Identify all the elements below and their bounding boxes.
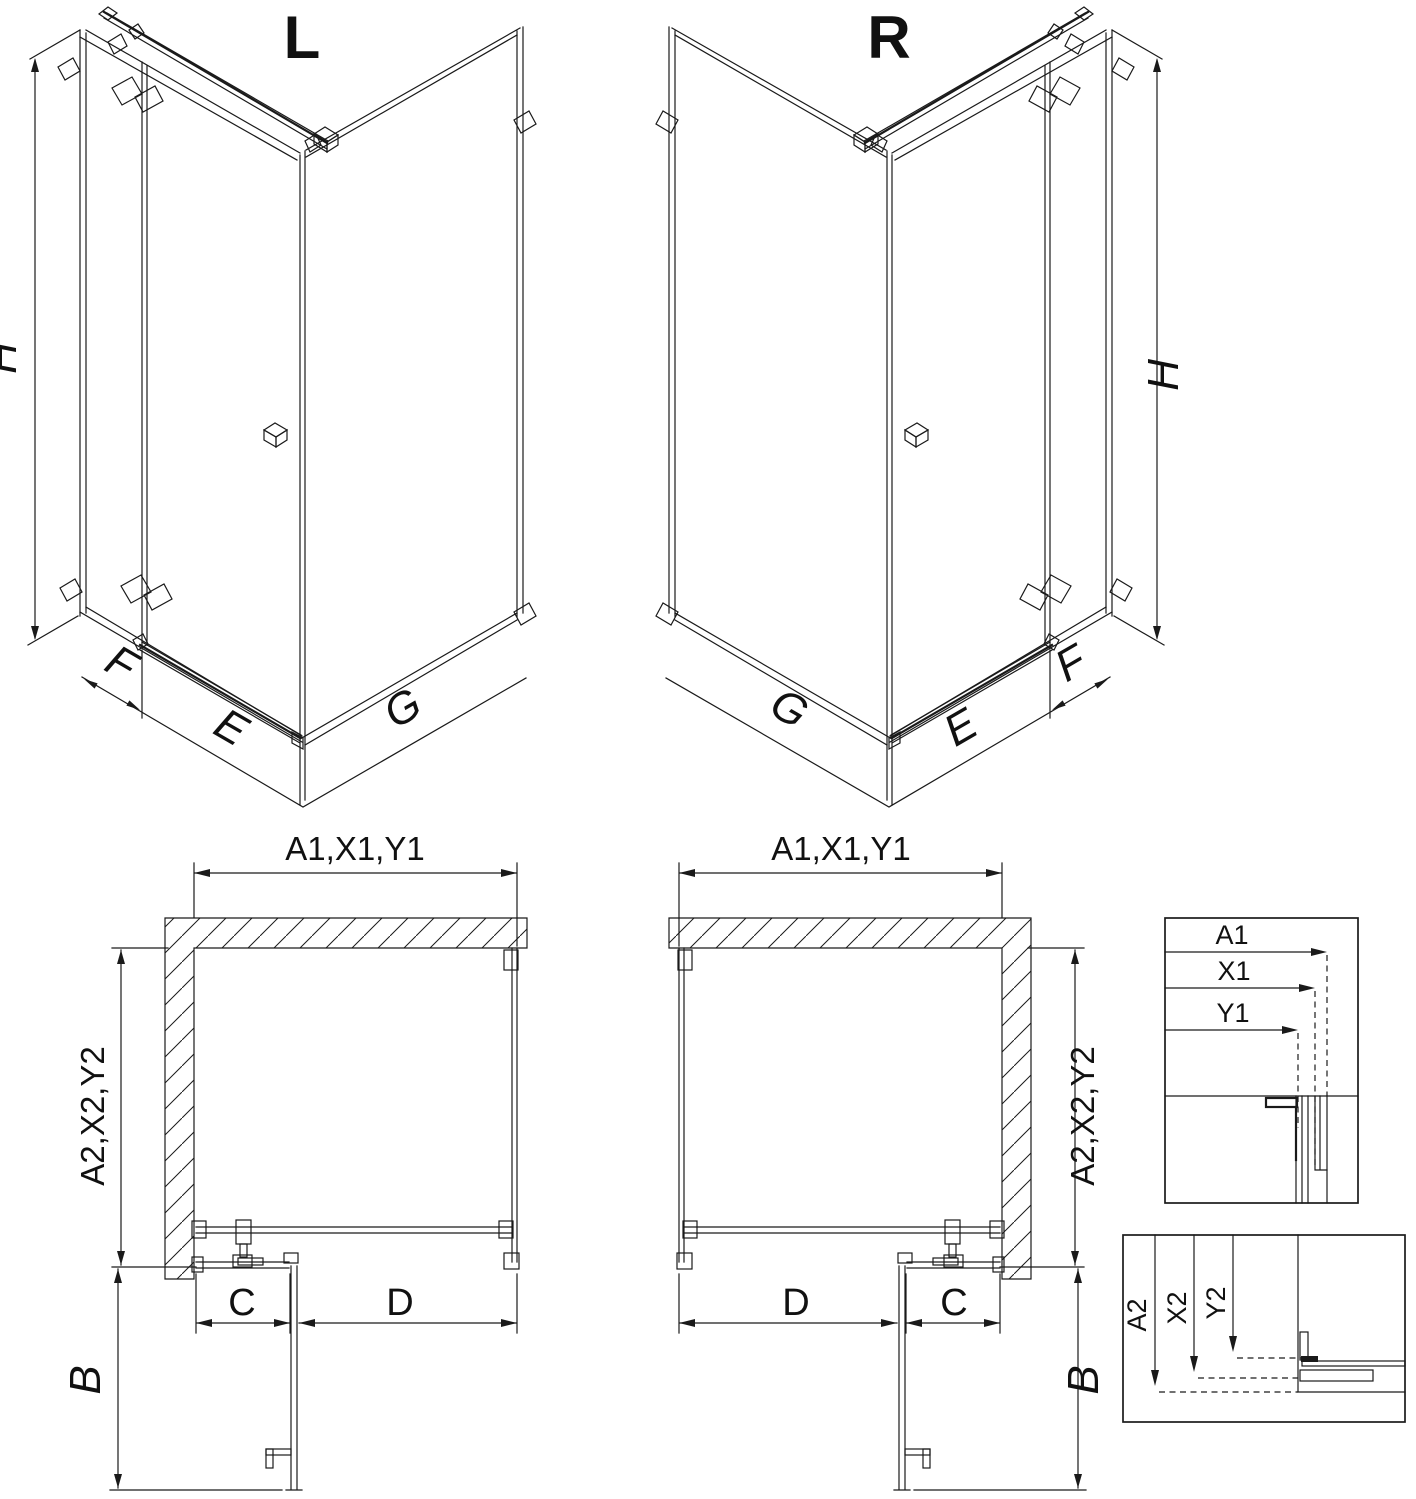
plan-left-door-dim-label: D xyxy=(386,1282,413,1324)
variant-right-title: R xyxy=(867,4,910,71)
detail-depth-y2-label: Y2 xyxy=(1201,1286,1231,1319)
iso-left-height-label: H xyxy=(0,342,26,374)
plan-right-fixed-dim-label: C xyxy=(940,1282,967,1324)
plan-right-depth-dim-label: A2,X2,Y2 xyxy=(1064,1046,1101,1185)
plan-left-fixed-dim-label: C xyxy=(228,1282,255,1324)
detail-depth-a2-label: A2 xyxy=(1122,1298,1152,1331)
iso-right-height-label: H xyxy=(1139,359,1188,391)
plan-right-swing-dim-label: B xyxy=(1059,1365,1108,1394)
variant-left-title: L xyxy=(284,4,321,71)
detail-width-a1-label: A1 xyxy=(1215,920,1248,950)
plan-left-depth-dim-label: A2,X2,Y2 xyxy=(74,1046,111,1185)
detail-width-y1-label: Y1 xyxy=(1216,998,1249,1028)
plan-right-width-dim-label: A1,X1,Y1 xyxy=(771,830,910,867)
plan-left-swing-dim-label: B xyxy=(61,1365,110,1394)
detail-depth-x2-label: X2 xyxy=(1162,1291,1192,1324)
shower-enclosure-technical-drawing: L H F E G R H F E G A1,X1,Y1 A2,X2,Y2 C … xyxy=(0,0,1416,1499)
technical-drawing-page: L H F E G R H F E G A1,X1,Y1 A2,X2,Y2 C … xyxy=(0,0,1416,1499)
page-background xyxy=(0,0,1416,1499)
plan-left-width-dim-label: A1,X1,Y1 xyxy=(285,830,424,867)
detail-width-x1-label: X1 xyxy=(1217,956,1250,986)
plan-right-door-dim-label: D xyxy=(782,1282,809,1324)
